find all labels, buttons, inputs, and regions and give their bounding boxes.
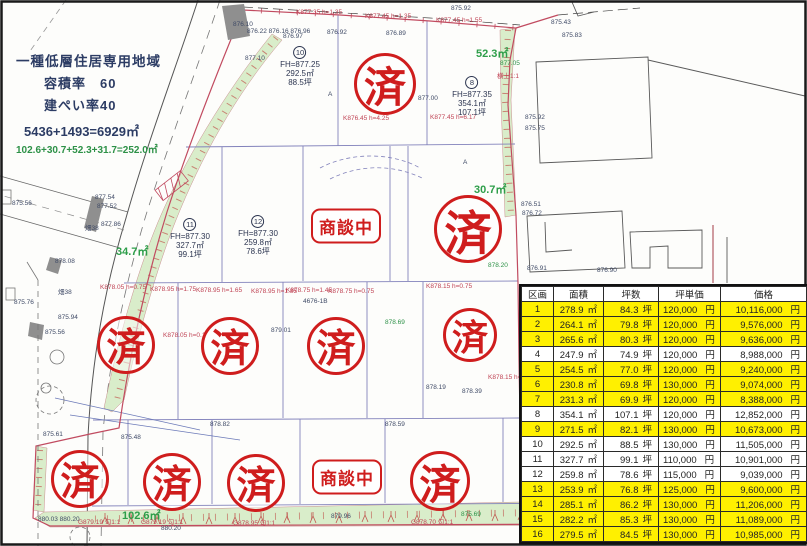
cell-area: 231.3㎡ — [554, 392, 604, 407]
unit-label: 坪 — [642, 305, 652, 316]
cell-price: 11,206,000円 — [721, 497, 807, 512]
cell-tsubo: 77.0坪 — [604, 362, 659, 377]
cell-plot-no: 5 — [522, 362, 554, 377]
unit-label: 円 — [705, 515, 715, 526]
cell-unit-price: 120,000円 — [659, 317, 721, 332]
header-price: 価格 — [721, 287, 807, 302]
cell-tsubo: 86.2坪 — [604, 497, 659, 512]
cell-plot-no: 1 — [522, 302, 554, 317]
cell-price: 12,852,000円 — [721, 407, 807, 422]
table-row: 15282.2㎡85.3坪130,000円11,089,000円 — [522, 512, 807, 527]
table-row: 11327.7㎡99.1坪110,000円10,901,000円 — [522, 452, 807, 467]
cell-plot-no: 6 — [522, 377, 554, 392]
cell-plot-no: 2 — [522, 317, 554, 332]
unit-label: ㎡ — [587, 485, 597, 496]
cell-tsubo: 84.3坪 — [604, 302, 659, 317]
unit-label: ㎡ — [587, 395, 597, 406]
unit-label: 坪 — [642, 470, 652, 481]
cell-plot-no: 4 — [522, 347, 554, 362]
cell-area: 282.2㎡ — [554, 512, 604, 527]
table-row: 16279.5㎡84.5坪130,000円10,985,000円 — [522, 527, 807, 542]
cell-unit-price: 130,000円 — [659, 497, 721, 512]
cell-tsubo: 79.8坪 — [604, 317, 659, 332]
unit-label: 円 — [790, 440, 800, 451]
cell-area: 327.7㎡ — [554, 452, 604, 467]
cell-tsubo: 74.9坪 — [604, 347, 659, 362]
cell-tsubo: 99.1坪 — [604, 452, 659, 467]
unit-label: 円 — [705, 530, 715, 541]
unit-label: 円 — [790, 485, 800, 496]
cell-price: 10,901,000円 — [721, 452, 807, 467]
cell-plot-no: 9 — [522, 422, 554, 437]
cell-tsubo: 84.5坪 — [604, 527, 659, 542]
unit-label: ㎡ — [587, 320, 597, 331]
cell-price: 9,240,000円 — [721, 362, 807, 377]
unit-label: 坪 — [642, 440, 652, 451]
unit-label: 円 — [790, 500, 800, 511]
cell-price: 9,039,000円 — [721, 467, 807, 482]
table-row: 6230.8㎡69.8坪130,000円9,074,000円 — [522, 377, 807, 392]
unit-label: ㎡ — [587, 455, 597, 466]
unit-label: 円 — [790, 335, 800, 346]
unit-label: 円 — [790, 515, 800, 526]
unit-label: ㎡ — [587, 470, 597, 481]
unit-label: 円 — [705, 470, 715, 481]
cell-price: 11,089,000円 — [721, 512, 807, 527]
unit-label: 坪 — [642, 350, 652, 361]
cell-price: 10,985,000円 — [721, 527, 807, 542]
cell-price: 9,636,000円 — [721, 332, 807, 347]
unit-label: ㎡ — [587, 380, 597, 391]
site-area-calc: 5436+1493=6929㎡ — [24, 121, 161, 140]
cell-unit-price: 120,000円 — [659, 407, 721, 422]
cell-plot-no: 16 — [522, 527, 554, 542]
unit-label: 坪 — [642, 380, 652, 391]
cell-price: 9,576,000円 — [721, 317, 807, 332]
cell-area: 264.1㎡ — [554, 317, 604, 332]
cell-unit-price: 130,000円 — [659, 527, 721, 542]
cell-tsubo: 88.5坪 — [604, 437, 659, 452]
green-area-calc: 102.6+30.7+52.3+31.7=252.0㎡ — [16, 141, 161, 156]
cell-tsubo: 69.8坪 — [604, 377, 659, 392]
volume-ratio-label: 容積率 60 — [44, 73, 161, 92]
cell-unit-price: 125,000円 — [659, 482, 721, 497]
cell-price: 11,505,000円 — [721, 437, 807, 452]
cell-unit-price: 130,000円 — [659, 512, 721, 527]
table-row: 10292.5㎡88.5坪130,000円11,505,000円 — [522, 437, 807, 452]
unit-label: 円 — [705, 485, 715, 496]
unit-label: 坪 — [642, 335, 652, 346]
cell-plot-no: 10 — [522, 437, 554, 452]
unit-label: ㎡ — [587, 500, 597, 511]
table-row: 12259.8㎡78.6坪115,000円9,039,000円 — [522, 467, 807, 482]
cell-unit-price: 120,000円 — [659, 347, 721, 362]
table-row: 9271.5㎡82.1坪130,000円10,673,000円 — [522, 422, 807, 437]
cell-unit-price: 120,000円 — [659, 392, 721, 407]
cell-tsubo: 107.1坪 — [604, 407, 659, 422]
unit-label: 円 — [705, 365, 715, 376]
cell-plot-no: 3 — [522, 332, 554, 347]
unit-label: 円 — [790, 320, 800, 331]
unit-label: ㎡ — [587, 530, 597, 541]
cell-area: 354.1㎡ — [554, 407, 604, 422]
unit-label: ㎡ — [587, 440, 597, 451]
cell-plot-no: 14 — [522, 497, 554, 512]
unit-label: 円 — [790, 425, 800, 436]
cell-area: 230.8㎡ — [554, 377, 604, 392]
cell-area: 254.5㎡ — [554, 362, 604, 377]
unit-label: 坪 — [642, 455, 652, 466]
cell-tsubo: 76.8坪 — [604, 482, 659, 497]
cell-area: 271.5㎡ — [554, 422, 604, 437]
cell-area: 285.1㎡ — [554, 497, 604, 512]
unit-label: ㎡ — [587, 335, 597, 346]
unit-label: 円 — [705, 335, 715, 346]
table-row: 4247.9㎡74.9坪120,000円8,988,000円 — [522, 347, 807, 362]
unit-label: ㎡ — [587, 425, 597, 436]
cell-area: 253.9㎡ — [554, 482, 604, 497]
cell-tsubo: 78.6坪 — [604, 467, 659, 482]
unit-label: 円 — [705, 410, 715, 421]
cell-plot-no: 12 — [522, 467, 554, 482]
cell-price: 10,116,000円 — [721, 302, 807, 317]
unit-label: 円 — [790, 455, 800, 466]
cell-plot-no: 7 — [522, 392, 554, 407]
header-tsubo: 坪数 — [604, 287, 659, 302]
cell-tsubo: 80.3坪 — [604, 332, 659, 347]
unit-label: 円 — [705, 350, 715, 361]
unit-label: 円 — [790, 470, 800, 481]
table-row: 5254.5㎡77.0坪120,000円9,240,000円 — [522, 362, 807, 377]
cell-area: 247.9㎡ — [554, 347, 604, 362]
unit-label: 坪 — [642, 515, 652, 526]
unit-label: ㎡ — [587, 365, 597, 376]
coverage-ratio-label: 建ぺい率40 — [44, 95, 161, 114]
unit-label: 坪 — [642, 500, 652, 511]
cell-unit-price: 120,000円 — [659, 362, 721, 377]
table-header-row: 区画 面積 坪数 坪単価 価格 — [522, 287, 807, 302]
cell-unit-price: 115,000円 — [659, 467, 721, 482]
cell-price: 10,673,000円 — [721, 422, 807, 437]
header-area: 面積 — [554, 287, 604, 302]
unit-label: 坪 — [642, 485, 652, 496]
cell-area: 278.9㎡ — [554, 302, 604, 317]
unit-label: 坪 — [642, 530, 652, 541]
cell-unit-price: 130,000円 — [659, 377, 721, 392]
cell-area: 259.8㎡ — [554, 467, 604, 482]
cell-unit-price: 120,000円 — [659, 302, 721, 317]
unit-label: 円 — [705, 500, 715, 511]
unit-label: 坪 — [642, 395, 652, 406]
cell-area: 292.5㎡ — [554, 437, 604, 452]
table-row: 2264.1㎡79.8坪120,000円9,576,000円 — [522, 317, 807, 332]
unit-label: ㎡ — [587, 515, 597, 526]
table-row: 8354.1㎡107.1坪120,000円12,852,000円 — [522, 407, 807, 422]
unit-label: 円 — [705, 380, 715, 391]
unit-label: 円 — [705, 320, 715, 331]
unit-label: 坪 — [642, 410, 652, 421]
unit-label: 円 — [790, 305, 800, 316]
cell-tsubo: 85.3坪 — [604, 512, 659, 527]
unit-label: 坪 — [642, 365, 652, 376]
zoning-label: 一種低層住居専用地域 — [16, 50, 161, 70]
price-table-body: 1278.9㎡84.3坪120,000円10,116,000円2264.1㎡79… — [522, 302, 807, 542]
unit-label: ㎡ — [587, 305, 597, 316]
unit-label: 円 — [705, 455, 715, 466]
unit-label: 円 — [790, 530, 800, 541]
cell-plot-no: 8 — [522, 407, 554, 422]
zoning-info: 一種低層住居専用地域 容積率 60 建ぺい率40 5436+1493=6929㎡… — [16, 50, 161, 156]
land-plot-flyer: 一種低層住居専用地域 容積率 60 建ぺい率40 5436+1493=6929㎡… — [0, 0, 807, 546]
unit-label: 円 — [705, 395, 715, 406]
cell-unit-price: 120,000円 — [659, 332, 721, 347]
unit-label: 円 — [790, 380, 800, 391]
table-row: 7231.3㎡69.9坪120,000円8,388,000円 — [522, 392, 807, 407]
table-row: 1278.9㎡84.3坪120,000円10,116,000円 — [522, 302, 807, 317]
cell-plot-no: 13 — [522, 482, 554, 497]
unit-label: 円 — [705, 425, 715, 436]
unit-label: 円 — [705, 305, 715, 316]
unit-label: 円 — [790, 365, 800, 376]
cell-plot-no: 15 — [522, 512, 554, 527]
unit-label: ㎡ — [587, 410, 597, 421]
cell-tsubo: 82.1坪 — [604, 422, 659, 437]
unit-label: 坪 — [642, 425, 652, 436]
cell-plot-no: 11 — [522, 452, 554, 467]
header-unit-price: 坪単価 — [659, 287, 721, 302]
cell-unit-price: 130,000円 — [659, 422, 721, 437]
cell-price: 8,388,000円 — [721, 392, 807, 407]
header-plot: 区画 — [522, 287, 554, 302]
cell-area: 265.6㎡ — [554, 332, 604, 347]
cell-tsubo: 69.9坪 — [604, 392, 659, 407]
unit-label: 円 — [790, 395, 800, 406]
table-row: 3265.6㎡80.3坪120,000円9,636,000円 — [522, 332, 807, 347]
cell-unit-price: 130,000円 — [659, 437, 721, 452]
cell-unit-price: 110,000円 — [659, 452, 721, 467]
cell-area: 279.5㎡ — [554, 527, 604, 542]
unit-label: 坪 — [642, 320, 652, 331]
unit-label: 円 — [790, 410, 800, 421]
unit-label: 円 — [790, 350, 800, 361]
table-row: 13253.9㎡76.8坪125,000円9,600,000円 — [522, 482, 807, 497]
price-table: 区画 面積 坪数 坪単価 価格 1278.9㎡84.3坪120,000円10,1… — [519, 284, 807, 544]
cell-price: 8,988,000円 — [721, 347, 807, 362]
unit-label: 円 — [705, 440, 715, 451]
table-row: 14285.1㎡86.2坪130,000円11,206,000円 — [522, 497, 807, 512]
cell-price: 9,074,000円 — [721, 377, 807, 392]
unit-label: ㎡ — [587, 350, 597, 361]
cell-price: 9,600,000円 — [721, 482, 807, 497]
